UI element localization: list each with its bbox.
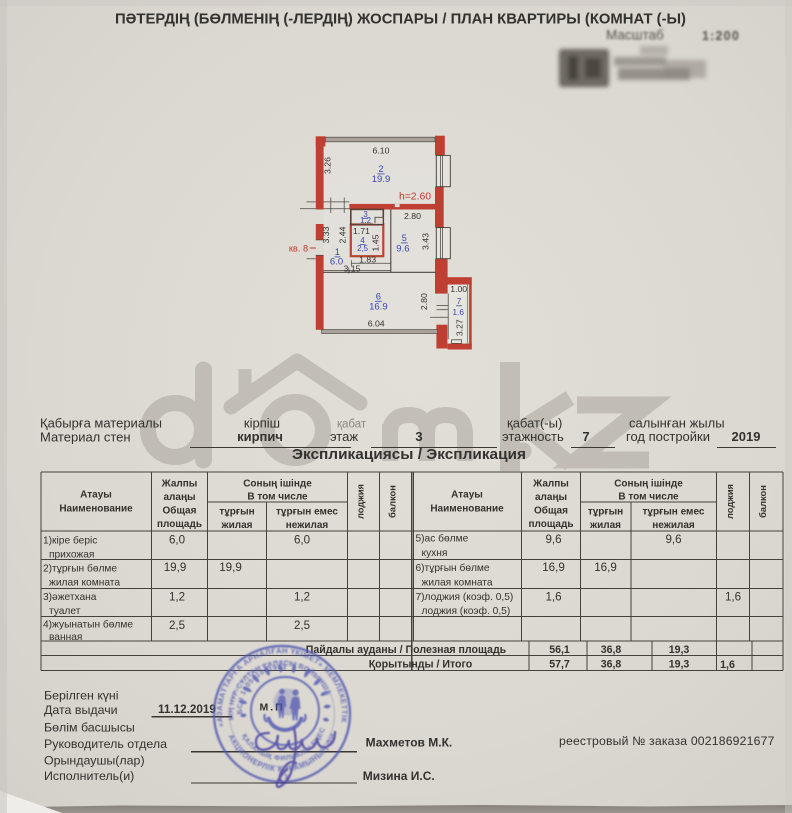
svg-text:1,2: 1,2 xyxy=(360,216,371,225)
svg-text:56,1: 56,1 xyxy=(549,644,570,656)
svg-text:Наименование: Наименование xyxy=(59,504,133,515)
svg-text:Общая: Общая xyxy=(534,505,568,517)
svg-text:лоджия: лоджия xyxy=(356,484,366,519)
svg-text:19,3: 19,3 xyxy=(669,644,690,656)
svg-text:Общая: Общая xyxy=(163,505,197,517)
svg-text:1: 1 xyxy=(335,247,340,257)
svg-text:Қорытынды / Итого: Қорытынды / Итого xyxy=(369,659,473,671)
svg-text:5: 5 xyxy=(402,233,407,243)
svg-text:2.44: 2.44 xyxy=(337,226,347,243)
svg-text:6.0: 6.0 xyxy=(330,256,343,267)
svg-text:балкон: балкон xyxy=(388,485,398,518)
svg-text:Масштаб: Масштаб xyxy=(606,28,664,43)
svg-text:36,8: 36,8 xyxy=(601,659,622,671)
svg-text:Бөлім басшысы: Бөлім басшысы xyxy=(44,721,135,735)
svg-text:лоджия: лоджия xyxy=(725,484,735,519)
svg-text:В том числе: В том числе xyxy=(247,492,308,503)
svg-text:4)жуынатын бөлме: 4)жуынатын бөлме xyxy=(43,619,133,631)
svg-text:h=2.60: h=2.60 xyxy=(399,192,431,203)
svg-text:57,7: 57,7 xyxy=(549,659,570,671)
svg-text:1)кіре беріс: 1)кіре беріс xyxy=(43,535,97,547)
svg-text:тұрғын емес: тұрғын емес xyxy=(643,507,705,518)
svg-text:2,5: 2,5 xyxy=(294,619,310,632)
svg-text:ПӘТЕРДІҢ (БӨЛМЕНІҢ (-ЛЕРДІҢ) Ж: ПӘТЕРДІҢ (БӨЛМЕНІҢ (-ЛЕРДІҢ) ЖОСПАРЫ / П… xyxy=(115,12,686,28)
svg-text:Берілген күні: Берілген күні xyxy=(44,689,119,703)
svg-text:Мизина И.С.: Мизина И.С. xyxy=(363,769,435,783)
svg-text:лоджия (коэф. 0,5): лоджия (коэф. 0,5) xyxy=(422,605,511,617)
svg-text:Дата выдачи: Дата выдачи xyxy=(44,703,118,717)
svg-text:Жалпы: Жалпы xyxy=(161,479,198,490)
svg-text:жилая: жилая xyxy=(221,520,253,531)
svg-text:2,5: 2,5 xyxy=(169,619,185,632)
svg-text:19,3: 19,3 xyxy=(669,659,690,671)
svg-text:3.33: 3.33 xyxy=(321,226,331,243)
svg-text:1.00: 1.00 xyxy=(450,284,467,294)
svg-text:6,0: 6,0 xyxy=(294,534,310,547)
svg-text:2.80: 2.80 xyxy=(419,293,429,310)
svg-text:нежилая: нежилая xyxy=(652,520,695,531)
svg-text:3.26: 3.26 xyxy=(322,157,332,174)
svg-text:6.04: 6.04 xyxy=(368,318,385,328)
svg-text:Материал стен: Материал стен xyxy=(40,429,131,444)
svg-text:Махметов М.К.: Махметов М.К. xyxy=(366,736,453,750)
svg-text:площадь: площадь xyxy=(157,519,202,530)
svg-text:Атауы: Атауы xyxy=(80,490,112,501)
svg-text:9.6: 9.6 xyxy=(396,244,409,255)
svg-text:тұрғын: тұрғын xyxy=(219,507,254,518)
svg-text:1.71: 1.71 xyxy=(353,226,370,236)
svg-text:2)тұрғын бөлме: 2)тұрғын бөлме xyxy=(43,563,117,575)
svg-text:6)тұрғын бөлме: 6)тұрғын бөлме xyxy=(416,562,490,574)
svg-text:36,8: 36,8 xyxy=(601,644,622,656)
svg-text:7: 7 xyxy=(457,297,462,306)
svg-text:7)лоджия (коэф. 0,5): 7)лоджия (коэф. 0,5) xyxy=(416,591,514,603)
svg-text:19,9: 19,9 xyxy=(219,561,242,574)
svg-text:Орындаушы(лар): Орындаушы(лар) xyxy=(44,754,145,768)
svg-text:7: 7 xyxy=(582,429,589,444)
svg-text:жилая: жилая xyxy=(589,520,621,531)
svg-text:кирпич: кирпич xyxy=(237,429,283,444)
svg-text:балкон: балкон xyxy=(758,485,768,518)
svg-text:нежилая: нежилая xyxy=(286,520,329,531)
svg-text:реестровый № заказа 0021869216: реестровый № заказа 002186921677 xyxy=(559,734,775,748)
svg-text:Пайдалы ауданы / Полезная площ: Пайдалы ауданы / Полезная площадь xyxy=(306,644,507,656)
svg-text:1.83: 1.83 xyxy=(359,254,376,264)
svg-text:алаңы: алаңы xyxy=(163,492,195,503)
svg-text:этаж: этаж xyxy=(330,429,358,444)
svg-text:алаңы: алаңы xyxy=(535,492,567,503)
svg-text:Жалпы: Жалпы xyxy=(532,479,569,490)
svg-text:11.12.2019: 11.12.2019 xyxy=(158,703,216,716)
svg-text:1.6: 1.6 xyxy=(453,308,465,317)
svg-text:прихожая: прихожая xyxy=(49,549,94,560)
svg-text:этажность: этажность xyxy=(502,429,564,444)
svg-text:жилая комната: жилая комната xyxy=(422,578,493,589)
svg-text:Атауы: Атауы xyxy=(451,490,483,501)
svg-text:1:200: 1:200 xyxy=(702,29,740,43)
svg-text:6.10: 6.10 xyxy=(373,146,390,156)
svg-text:3)әжетхана: 3)әжетхана xyxy=(43,592,97,603)
svg-text:В том числе: В том числе xyxy=(618,492,679,503)
svg-text:2019: 2019 xyxy=(732,429,761,444)
svg-text:5)ас бөлме: 5)ас бөлме xyxy=(416,533,469,545)
svg-text:ванная: ванная xyxy=(49,632,82,643)
svg-text:1.45: 1.45 xyxy=(370,234,380,251)
svg-text:Наименование: Наименование xyxy=(430,504,504,515)
svg-text:кухня: кухня xyxy=(422,548,448,559)
svg-text:Исполнитель(и): Исполнитель(и) xyxy=(44,769,134,783)
svg-text:Руководитель отдела: Руководитель отдела xyxy=(44,737,167,751)
svg-text:жилая комната: жилая комната xyxy=(49,578,120,589)
svg-text:Экспликациясы / Экспликация: Экспликациясы / Экспликация xyxy=(292,447,526,463)
svg-text:6,0: 6,0 xyxy=(169,534,185,547)
svg-text:1,6: 1,6 xyxy=(720,659,735,671)
svg-text:1,6: 1,6 xyxy=(545,591,561,604)
svg-text:3.15: 3.15 xyxy=(344,263,361,273)
svg-text:3.43: 3.43 xyxy=(420,233,430,250)
svg-text:1,2: 1,2 xyxy=(294,591,310,604)
svg-text:год постройки: год постройки xyxy=(626,429,710,444)
svg-text:19,9: 19,9 xyxy=(164,561,187,574)
svg-text:19.9: 19.9 xyxy=(372,174,391,185)
svg-text:9,6: 9,6 xyxy=(545,533,561,546)
svg-text:тұрғын емес: тұрғын емес xyxy=(276,507,338,518)
svg-text:3: 3 xyxy=(415,429,422,444)
svg-text:9,6: 9,6 xyxy=(665,533,681,546)
svg-text:туалет: туалет xyxy=(49,606,81,617)
svg-text:3.27: 3.27 xyxy=(454,319,464,336)
svg-text:1,6: 1,6 xyxy=(725,591,741,604)
svg-text:16,9: 16,9 xyxy=(594,561,617,574)
svg-text:кв. 8: кв. 8 xyxy=(289,243,308,253)
svg-text:2.80: 2.80 xyxy=(404,211,421,221)
svg-text:тұрғын: тұрғын xyxy=(588,507,623,518)
svg-text:площадь: площадь xyxy=(529,519,574,530)
svg-text:16,9: 16,9 xyxy=(542,561,565,574)
svg-text:2,5: 2,5 xyxy=(357,244,369,253)
svg-text:Соның ішінде: Соның ішінде xyxy=(614,479,683,490)
svg-text:1,2: 1,2 xyxy=(169,591,185,604)
svg-text:16.9: 16.9 xyxy=(369,302,388,313)
svg-text:Соның ішінде: Соның ішінде xyxy=(243,479,312,490)
